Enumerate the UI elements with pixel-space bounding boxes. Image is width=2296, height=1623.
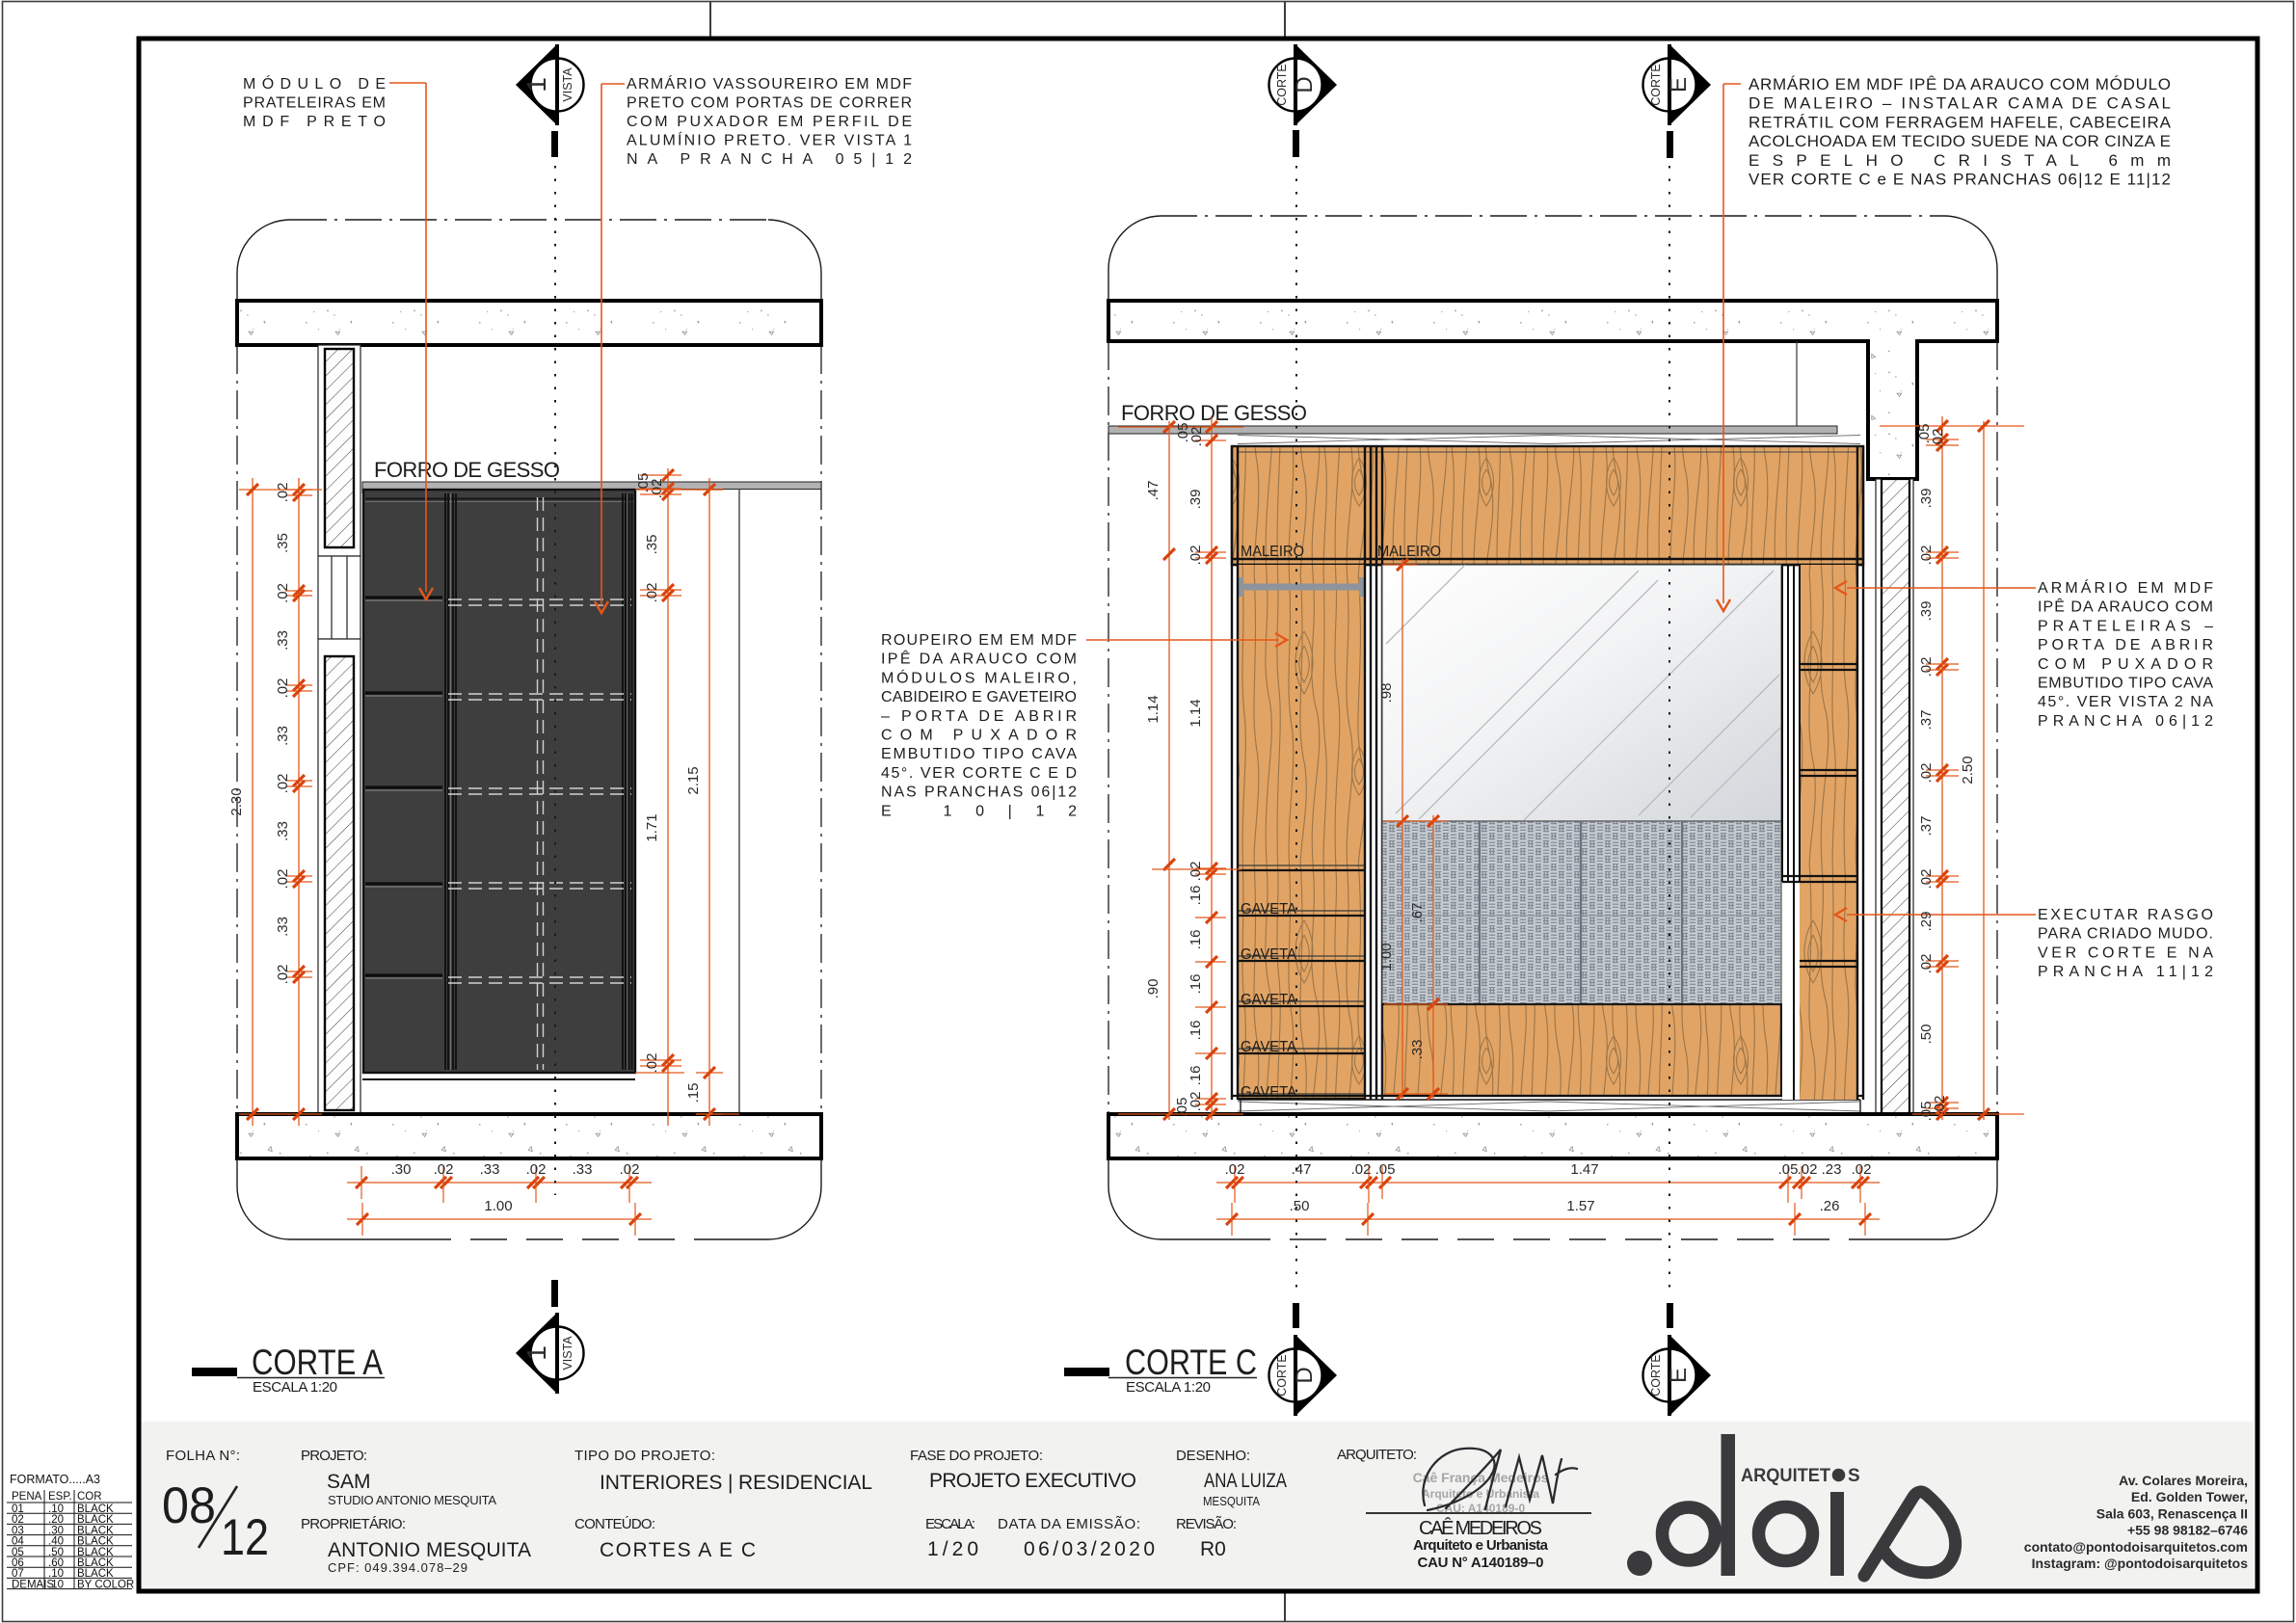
svg-text:.37: .37 (1918, 816, 1935, 837)
svg-text:1.00: 1.00 (1378, 943, 1395, 971)
svg-text:.02: .02 (526, 1161, 547, 1178)
svg-text:.16: .16 (1188, 1021, 1204, 1041)
svg-text:.35: .35 (644, 535, 660, 555)
svg-text:STUDIO ANTONIO MESQUITA: STUDIO ANTONIO MESQUITA (328, 1493, 496, 1507)
svg-text:COR: COR (77, 1491, 102, 1503)
svg-text:1: 1 (521, 1345, 551, 1361)
svg-text:FORRO DE GESSO: FORRO DE GESSO (1121, 401, 1307, 425)
svg-text:.33: .33 (480, 1161, 500, 1178)
svg-text:.02: .02 (275, 774, 291, 794)
svg-text:.33: .33 (275, 630, 291, 651)
svg-text:PROJETO:: PROJETO: (301, 1448, 367, 1464)
svg-text:.47: .47 (1292, 1161, 1312, 1178)
svg-text:PRATELEIRAS EM: PRATELEIRAS EM (243, 95, 386, 112)
svg-text:1.14: 1.14 (1188, 699, 1204, 727)
svg-text:GAVETA: GAVETA (1241, 946, 1296, 963)
svg-text:.02: .02 (644, 1053, 660, 1074)
svg-text:.02: .02 (1798, 1161, 1818, 1178)
svg-text:.33: .33 (1409, 1040, 1426, 1060)
svg-text:E: E (1666, 77, 1692, 93)
svg-text:.02: .02 (275, 678, 291, 699)
svg-text:.47: .47 (1145, 481, 1161, 501)
svg-text:ANTONIO MESQUITA: ANTONIO MESQUITA (328, 1539, 531, 1561)
svg-text:PENA: PENA (12, 1491, 42, 1503)
svg-text:ESCALA:: ESCALA: (925, 1516, 975, 1532)
svg-text:.02: .02 (1852, 1161, 1872, 1178)
svg-text:MÓDULO DE: MÓDULO DE (243, 74, 386, 93)
svg-text:MALEIRO: MALEIRO (1241, 544, 1304, 560)
svg-text:CAU N° A140189–0: CAU N° A140189–0 (1418, 1555, 1544, 1571)
svg-text:.29: .29 (1918, 912, 1935, 932)
svg-text:CORTE: CORTE (1275, 64, 1289, 106)
svg-text:.33: .33 (275, 821, 291, 841)
svg-text:RETRÁTIL COM FERRAGEM HAFEL: RETRÁTIL COM FERRAGEM HAFELE, CABECEIRA (1749, 113, 2172, 131)
svg-text:ANA LUIZA: ANA LUIZA (1204, 1470, 1287, 1492)
svg-text:S: S (1848, 1466, 1860, 1486)
svg-text:.30: .30 (391, 1161, 412, 1178)
svg-text:.05: .05 (1918, 1102, 1935, 1122)
svg-text:08: 08 (162, 1477, 216, 1534)
svg-text:.02: .02 (1918, 869, 1935, 890)
svg-text:MÓDULOS MALEIRO,: MÓDULOS MALEIRO, (881, 668, 1077, 686)
svg-text:Sala 603, Renascença II: Sala 603, Renascença II (2096, 1505, 2248, 1521)
svg-text:.02: .02 (1918, 954, 1935, 974)
svg-text:ESCALA 1:20: ESCALA 1:20 (1126, 1379, 1211, 1396)
svg-text:EMBUTIDO TIPO CAVA: EMBUTIDO TIPO CAVA (881, 746, 1077, 762)
svg-text:NAS PRANCHAS 06|12: NAS PRANCHAS 06|12 (881, 785, 1077, 801)
svg-text:E: E (1666, 1368, 1692, 1383)
svg-text:.39: .39 (1188, 490, 1204, 510)
svg-text:EMBUTIDO TIPO CAVA: EMBUTIDO TIPO CAVA (2038, 676, 2213, 692)
svg-text:.02: .02 (275, 869, 291, 890)
svg-text:1/20: 1/20 (927, 1538, 978, 1560)
svg-text:CORTES A E C: CORTES A E C (600, 1539, 756, 1561)
svg-text:.33: .33 (573, 1161, 593, 1178)
svg-text:FASE DO PROJETO:: FASE DO PROJETO: (910, 1448, 1043, 1464)
svg-text:.02: .02 (1188, 545, 1204, 566)
svg-text:Ed. Golden Tower,: Ed. Golden Tower, (2131, 1489, 2248, 1504)
svg-text:DATA DA EMISSÃO:: DATA DA EMISSÃO: (998, 1516, 1140, 1532)
svg-text:.16: .16 (1188, 930, 1204, 950)
svg-text:.26: .26 (1820, 1198, 1840, 1214)
svg-text:DESENHO:: DESENHO: (1176, 1448, 1250, 1464)
svg-text:.02: .02 (644, 583, 660, 603)
svg-text:ACOLCHOADA EM TECIDO SUEDE: ACOLCHOADA EM TECIDO SUEDE NA COR CINZA … (1749, 132, 2171, 150)
svg-text:.05: .05 (1778, 1161, 1799, 1178)
svg-text:Av. Colares Moreira,: Av. Colares Moreira, (2119, 1473, 2248, 1488)
svg-text:.02: .02 (275, 583, 291, 603)
svg-text:INTERIORES | RESIDENCIAL: INTERIORES | RESIDENCIAL (600, 1472, 872, 1494)
svg-text:.02: .02 (1918, 657, 1935, 678)
svg-text:.02: .02 (1188, 862, 1204, 882)
svg-text:.39: .39 (1918, 489, 1935, 509)
svg-text:2.15: 2.15 (685, 766, 702, 794)
svg-text:TIPO DO PROJETO:: TIPO DO PROJETO: (574, 1448, 715, 1464)
svg-text:.16: .16 (1188, 1066, 1204, 1086)
svg-text:CAÊ MEDEIROS: CAÊ MEDEIROS (1419, 1517, 1542, 1539)
svg-text:ESCALA 1:20: ESCALA 1:20 (253, 1379, 337, 1396)
svg-text:MALEIRO: MALEIRO (1377, 544, 1441, 560)
svg-text:D: D (1292, 76, 1318, 93)
svg-text:.02: .02 (1918, 763, 1935, 784)
svg-text:ROUPEIRO EM EM MDF: ROUPEIRO EM EM MDF (881, 632, 1077, 649)
svg-text:.35: .35 (275, 533, 291, 553)
svg-text:.15: .15 (685, 1083, 702, 1104)
svg-text:PRETO COM PORTAS DE CORRER: PRETO COM PORTAS DE CORRER (627, 95, 912, 112)
svg-text:COM PUXADOR: COM PUXADOR (2038, 656, 2213, 673)
svg-text:.05: .05 (1375, 1161, 1396, 1178)
svg-text:.02: .02 (1225, 1161, 1245, 1178)
svg-text:.16: .16 (1188, 974, 1204, 995)
svg-text:.23: .23 (1822, 1161, 1842, 1178)
svg-text:PROPRIETÁRIO:: PROPRIETÁRIO: (301, 1516, 406, 1532)
svg-text:FOLHA N°:: FOLHA N°: (166, 1448, 240, 1464)
svg-text:Arquiteto e Urbanista: Arquiteto e Urbanista (1413, 1537, 1549, 1554)
svg-text:PROJETO EXECUTIVO: PROJETO EXECUTIVO (929, 1470, 1136, 1492)
svg-text:.90: .90 (1145, 979, 1161, 999)
svg-text:– PORTA DE ABRIR: – PORTA DE ABRIR (881, 708, 1077, 725)
svg-text:1.14: 1.14 (1145, 695, 1161, 723)
svg-text:IPÊ DA ARAUCO COM: IPÊ DA ARAUCO COM (2038, 598, 2213, 616)
svg-text:R0: R0 (1200, 1538, 1226, 1560)
svg-text:VISTA: VISTA (561, 1336, 574, 1370)
svg-text:.02: .02 (1188, 427, 1205, 447)
svg-text:ALUMÍNIO PRETO. VER VISTA: ALUMÍNIO PRETO. VER VISTA 1 (627, 131, 912, 149)
svg-text:.02: .02 (275, 965, 291, 985)
svg-text:ARQUITET: ARQUITET (1741, 1466, 1830, 1486)
svg-text:ARMÁRIO EM MDF IPÊ DA ARA: ARMÁRIO EM MDF IPÊ DA ARAUCO COM MÓDULO (1749, 75, 2171, 93)
svg-text:CORTE: CORTE (1649, 64, 1663, 106)
svg-text:VISTA: VISTA (561, 67, 574, 102)
svg-text:2.30: 2.30 (228, 787, 245, 815)
svg-text:REVISÃO:: REVISÃO: (1176, 1516, 1237, 1532)
svg-text:GAVETA: GAVETA (1241, 1084, 1296, 1101)
svg-text:.67: .67 (1409, 903, 1426, 923)
svg-text:.02: .02 (1351, 1161, 1372, 1178)
svg-text:CORTE: CORTE (1649, 1354, 1663, 1397)
svg-text:.02: .02 (1918, 545, 1935, 566)
svg-text:.02: .02 (275, 483, 291, 503)
svg-text:.98: .98 (1378, 683, 1395, 704)
svg-text:12: 12 (221, 1509, 269, 1566)
svg-text:45°. VER CORTE C E D: 45°. VER CORTE C E D (881, 765, 1077, 782)
svg-text:1.57: 1.57 (1566, 1198, 1594, 1214)
svg-text:MESQUITA: MESQUITA (1203, 1494, 1260, 1508)
svg-text:CPF: 049.394.078–29: CPF: 049.394.078–29 (328, 1560, 467, 1575)
svg-text:COM PUXADOR: COM PUXADOR (881, 728, 1077, 744)
svg-text:1.00: 1.00 (484, 1198, 512, 1214)
svg-text:Arquiteto e Urbanista: Arquiteto e Urbanista (1422, 1487, 1539, 1501)
svg-text:GAVETA: GAVETA (1241, 992, 1296, 1008)
svg-text:CORTE A: CORTE A (252, 1343, 383, 1382)
svg-text:CABIDEIRO E GAVETEIRO: CABIDEIRO E GAVETEIRO (881, 689, 1077, 705)
svg-text:CONTEÚDO:: CONTEÚDO: (574, 1516, 655, 1532)
svg-text:CORTE C: CORTE C (1125, 1343, 1257, 1382)
svg-text:contato@pontodoisarquitetos.co: contato@pontodoisarquitetos.com (2024, 1539, 2248, 1555)
svg-text:Instagram: @pontodoisarquitet: Instagram: @pontodoisarquitetos (2032, 1556, 2249, 1571)
svg-text:.16: .16 (1188, 886, 1204, 906)
svg-text:ESP.: ESP. (48, 1491, 72, 1503)
svg-text:.37: .37 (1918, 710, 1935, 731)
svg-text:.33: .33 (275, 726, 291, 746)
svg-text:D: D (1292, 1367, 1318, 1383)
svg-text:.02: .02 (620, 1161, 640, 1178)
svg-text:.50: .50 (1290, 1198, 1310, 1214)
svg-text:2.50: 2.50 (1960, 756, 1976, 784)
svg-text:CORTE: CORTE (1275, 1354, 1289, 1397)
svg-text:.33: .33 (275, 917, 291, 937)
svg-text:FORMATO.....A3: FORMATO.....A3 (10, 1473, 100, 1486)
svg-text:.02: .02 (1930, 429, 1946, 449)
svg-text:FORRO DE GESSO: FORRO DE GESSO (374, 458, 560, 482)
svg-text:.05: .05 (1174, 1098, 1190, 1118)
svg-text:SAM: SAM (327, 1471, 371, 1493)
svg-text:.02: .02 (649, 479, 665, 499)
svg-text:PARA CRIADO MUDO.: PARA CRIADO MUDO. (2038, 926, 2213, 943)
svg-text:.02: .02 (434, 1161, 454, 1178)
svg-text:GAVETA: GAVETA (1241, 1039, 1296, 1055)
svg-text:GAVETA: GAVETA (1241, 901, 1296, 918)
svg-text:VER CORTE C e E NAS PRANCHAS 0: VER CORTE C e E NAS PRANCHAS 06|12 E 11|… (1749, 171, 2171, 189)
svg-text:ARQUITETO:: ARQUITETO: (1337, 1447, 1417, 1463)
svg-text:1.47: 1.47 (1570, 1161, 1598, 1178)
svg-text:+55 98 98182–6746: +55 98 98182–6746 (2127, 1523, 2248, 1538)
svg-text:MDF PRETO: MDF PRETO (243, 114, 386, 130)
svg-text:.50: .50 (1918, 1024, 1935, 1045)
svg-text:.39: .39 (1918, 601, 1935, 622)
svg-text:1: 1 (521, 77, 551, 93)
svg-text:1.71: 1.71 (644, 813, 660, 841)
